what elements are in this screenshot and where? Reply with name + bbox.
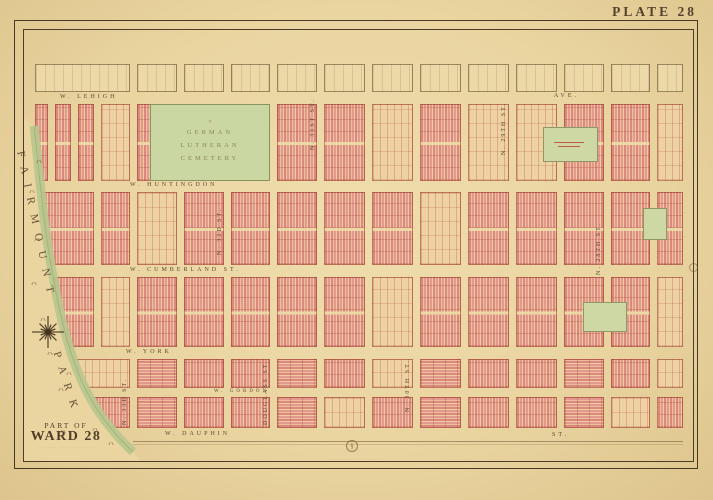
inner-border xyxy=(23,29,694,462)
plate-title: PLATE 28 xyxy=(612,4,697,20)
atlas-plate-page: † GERMAN LUTHERAN CEMETERY W. LEHIGH AVE… xyxy=(0,0,713,500)
border-circle-icon xyxy=(689,263,698,272)
